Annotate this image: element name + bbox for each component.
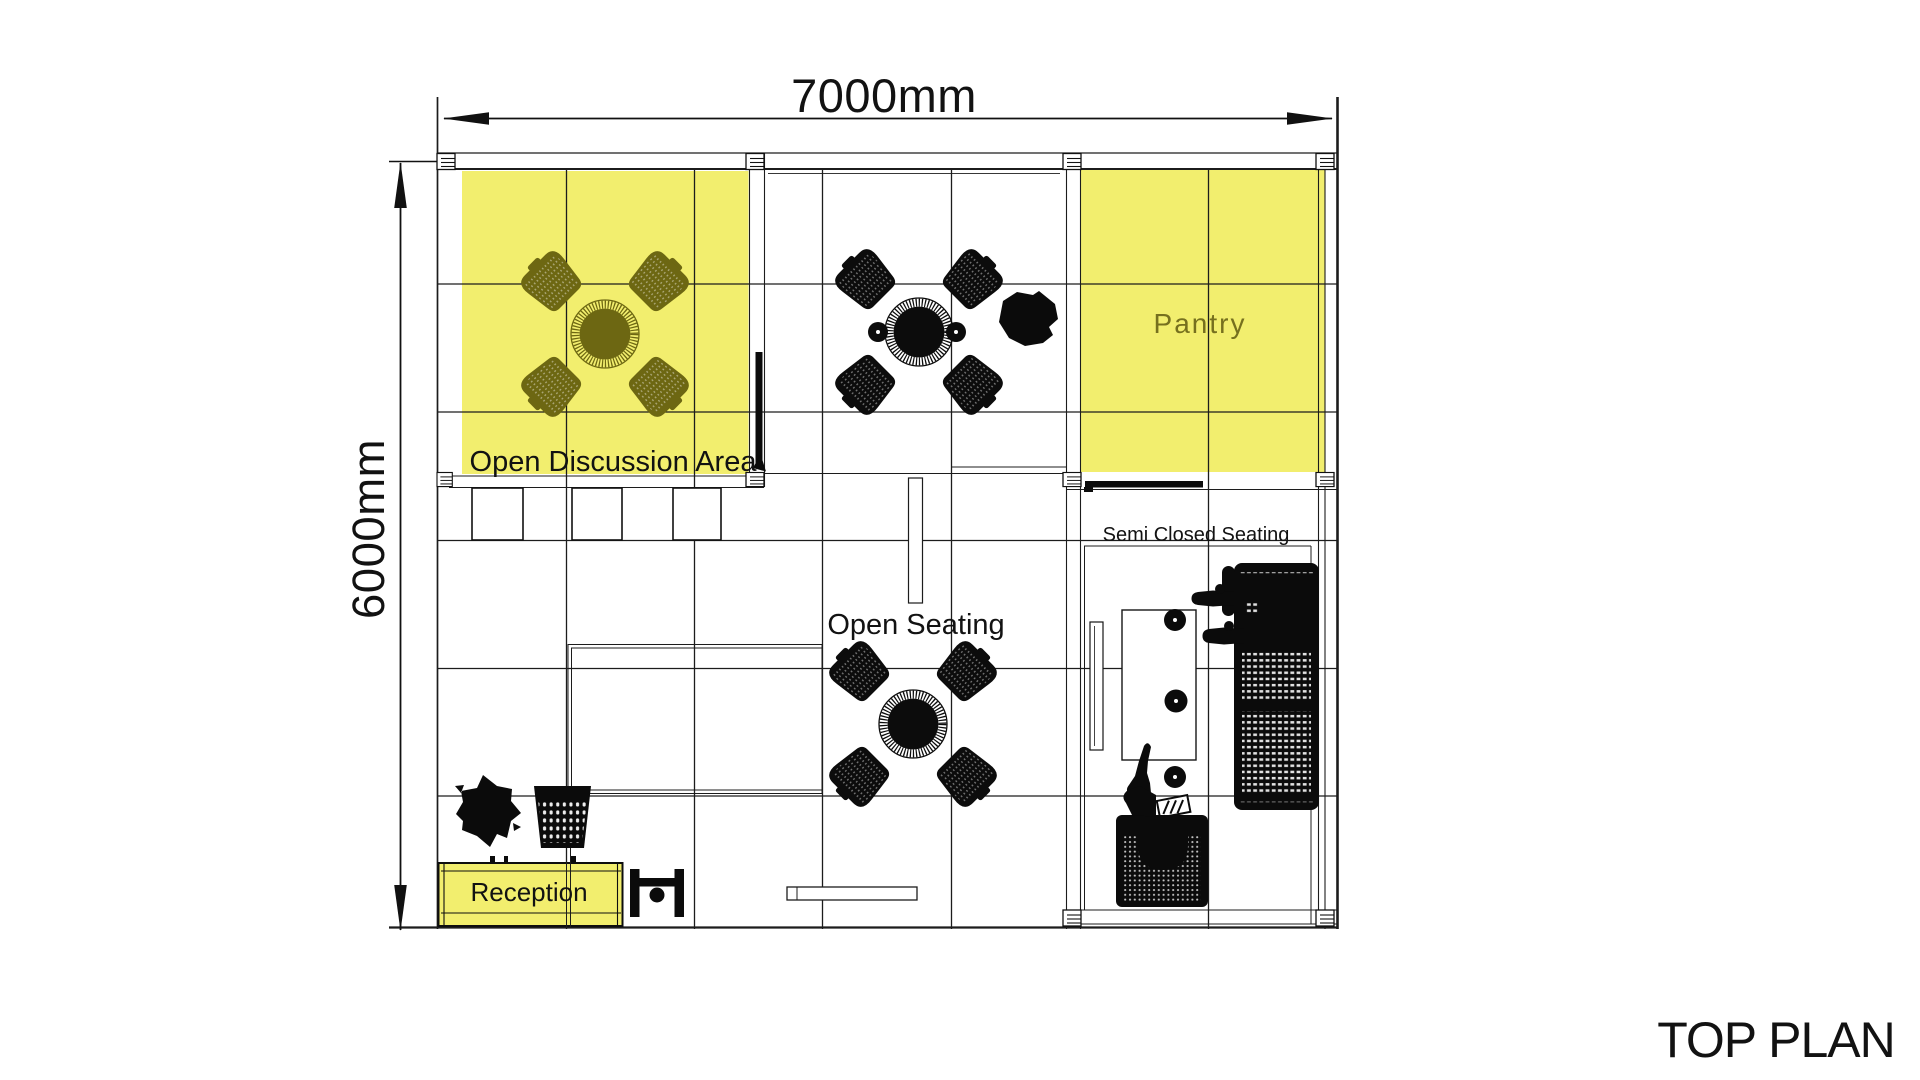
svg-text:Pantry: Pantry	[1154, 308, 1247, 339]
svg-text:7000mm: 7000mm	[791, 69, 977, 122]
svg-text:6000mm: 6000mm	[343, 439, 394, 619]
svg-text:Open Seating: Open Seating	[827, 609, 1004, 641]
svg-text:Reception: Reception	[470, 877, 587, 907]
svg-text:Open Discussion Area: Open Discussion Area	[470, 446, 758, 478]
svg-text:TOP PLAN: TOP PLAN	[1657, 1012, 1894, 1068]
svg-text:Semi Closed Seating: Semi Closed Seating	[1103, 524, 1290, 546]
